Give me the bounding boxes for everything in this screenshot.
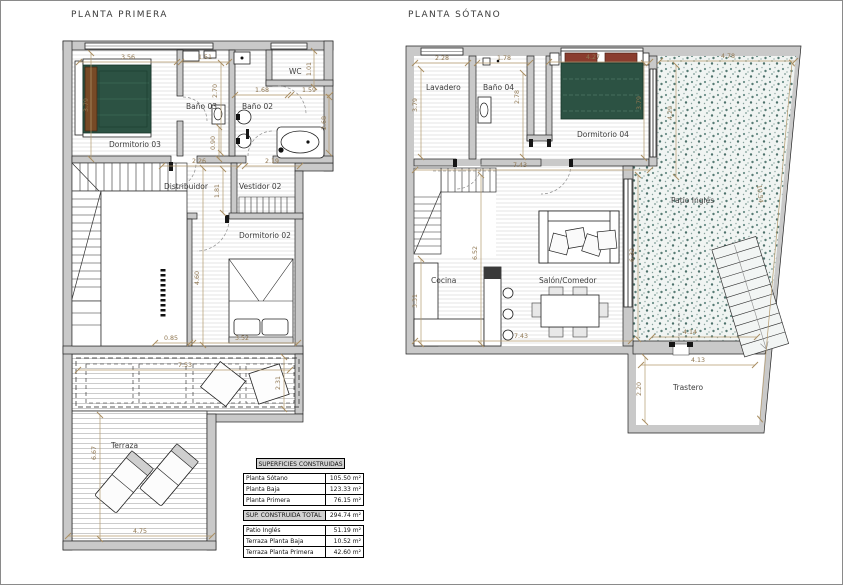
surface-table-floors: Planta Sótano 105.50 m² Planta Baja 123.… [243, 473, 364, 506]
row-label: Terraza Planta Primera [244, 548, 325, 557]
row-value: 51.19 m² [325, 526, 363, 535]
room-label-wc: WC [289, 67, 302, 76]
table-row: Planta Primera 76.15 m² [243, 495, 364, 506]
row-label: Planta Baja [244, 485, 325, 494]
surface-table-total: SUP. CONSTRUIDA TOTAL 294.74 m² [243, 510, 364, 521]
row-value: 42.60 m² [325, 547, 363, 557]
room-label-dormitorio-03: Dormitorio 03 [109, 140, 161, 149]
surface-table-extras: Patio Inglés 51.19 m² Terraza Planta Baj… [243, 525, 364, 558]
room-label-patio-ingles: Patio Inglés [671, 196, 714, 205]
room-label-cocina: Cocina [431, 276, 456, 285]
dimension-label: 3.79 [412, 98, 419, 112]
room-label-salon-comedor: Salón/Comedor [539, 276, 597, 285]
floorplan-sheet: PLANTA PRIMERA PLANTA SÓTANO [0, 0, 843, 585]
table-row: Planta Baja 123.33 m² [243, 484, 364, 495]
dimension-label: 3.52 [235, 335, 249, 342]
bathtub [277, 127, 324, 158]
dimension-label: 4.27 [586, 54, 600, 61]
row-label: Terraza Planta Baja [244, 537, 325, 546]
row-value: 105.50 m² [325, 474, 363, 483]
table-row: Terraza Planta Primera 42.60 m² [243, 547, 364, 558]
dimension-label: 3.31 [412, 294, 419, 308]
dimension-label: 1.01 [306, 62, 313, 76]
surface-areas-table: SUPERFICIES CONSTRUIDAS Planta Sótano 10… [243, 458, 364, 558]
dimension-label: 2.78 [514, 90, 521, 104]
bed-dormitorio-04 [550, 51, 649, 119]
dimension-label: 4.60 [194, 271, 201, 285]
row-label: Planta Primera [244, 496, 325, 505]
row-value: 10.52 m² [325, 536, 363, 546]
table-row: Terraza Planta Baja 10.52 m² [243, 536, 364, 547]
room-label-dormitorio-04: Dormitorio 04 [577, 130, 629, 139]
dimension-label: 1.68 [255, 87, 269, 94]
dimension-label: 2.68 [321, 116, 328, 130]
room-label-bano-04: Baño 04 [483, 83, 514, 92]
room-label-trastero: Trastero [672, 383, 704, 392]
bar-stool [503, 330, 513, 340]
dimension-label: 3.56 [121, 54, 135, 61]
dimension-label: 1.59 [302, 87, 316, 94]
dimension-label: 2.31 [275, 376, 282, 390]
dimension-label: 2.26 [192, 158, 206, 165]
dimension-label: 6.32 [629, 248, 636, 262]
room-label-distribuidor: Distribuidor [164, 182, 209, 191]
surface-table-header: SUPERFICIES CONSTRUIDAS [256, 458, 345, 469]
bed-dormitorio-02 [229, 259, 293, 343]
room-label-dormitorio-02: Dormitorio 02 [239, 231, 291, 240]
room-label-terraza: Terraza [110, 441, 138, 450]
dimension-label: 2.28 [435, 55, 449, 62]
dimension-label: 4.29 [667, 106, 674, 120]
dimension-label: 4.13 [691, 357, 705, 364]
room-label-bano-03: Baño 03 [186, 102, 217, 111]
dimension-label: 7.53 [178, 362, 192, 369]
dimension-label: 2.70 [212, 84, 219, 98]
dimension-label: 1.51 [198, 54, 212, 61]
dimension-label: 4.78 [721, 53, 735, 60]
plan-planta-sotano: 2.28 1.78 4.27 4.78 3.79 2.78 3.79 4.29 … [406, 46, 801, 433]
room-label-lavadero: Lavadero [426, 83, 461, 92]
row-value: 123.33 m² [325, 484, 363, 494]
floorplan-drawing: 3.56 1.51 1.01 2.70 1.68 1.59 2.68 0.90 … [1, 1, 843, 585]
dimension-label: 4.75 [133, 528, 147, 535]
dimension-label: 7.43 [514, 333, 528, 340]
dimension-label: 7.43 [513, 162, 527, 169]
dimension-label: 2.19 [265, 158, 279, 165]
dimension-label: 0.85 [164, 335, 178, 342]
dimension-label: 3.79 [83, 98, 90, 112]
dimension-label: 1.78 [497, 55, 511, 62]
row-value: 294.74 m² [325, 511, 363, 520]
table-row-total: SUP. CONSTRUIDA TOTAL 294.74 m² [243, 510, 364, 521]
dimension-label: 6.67 [91, 446, 98, 460]
table-row: Planta Sótano 105.50 m² [243, 473, 364, 484]
dimension-label: 0.90 [210, 136, 217, 150]
dimension-label: 2.20 [636, 382, 643, 396]
row-label: SUP. CONSTRUIDA TOTAL [244, 511, 325, 520]
row-label: Patio Inglés [244, 526, 325, 535]
room-label-bano-02: Baño 02 [242, 102, 273, 111]
dimension-label: 4.14 [683, 329, 697, 336]
row-value: 76.15 m² [325, 495, 363, 505]
sofa [539, 211, 619, 263]
room-label-vestidor-02: Vestidor 02 [239, 182, 282, 191]
bar-stool [503, 288, 513, 298]
dimension-label: 1.81 [214, 184, 221, 198]
table-row: Patio Inglés 51.19 m² [243, 525, 364, 536]
dimension-label: 3.79 [636, 96, 643, 110]
row-label: Planta Sótano [244, 474, 325, 483]
bar-stool [503, 309, 513, 319]
dimension-label: 6.52 [472, 246, 479, 260]
